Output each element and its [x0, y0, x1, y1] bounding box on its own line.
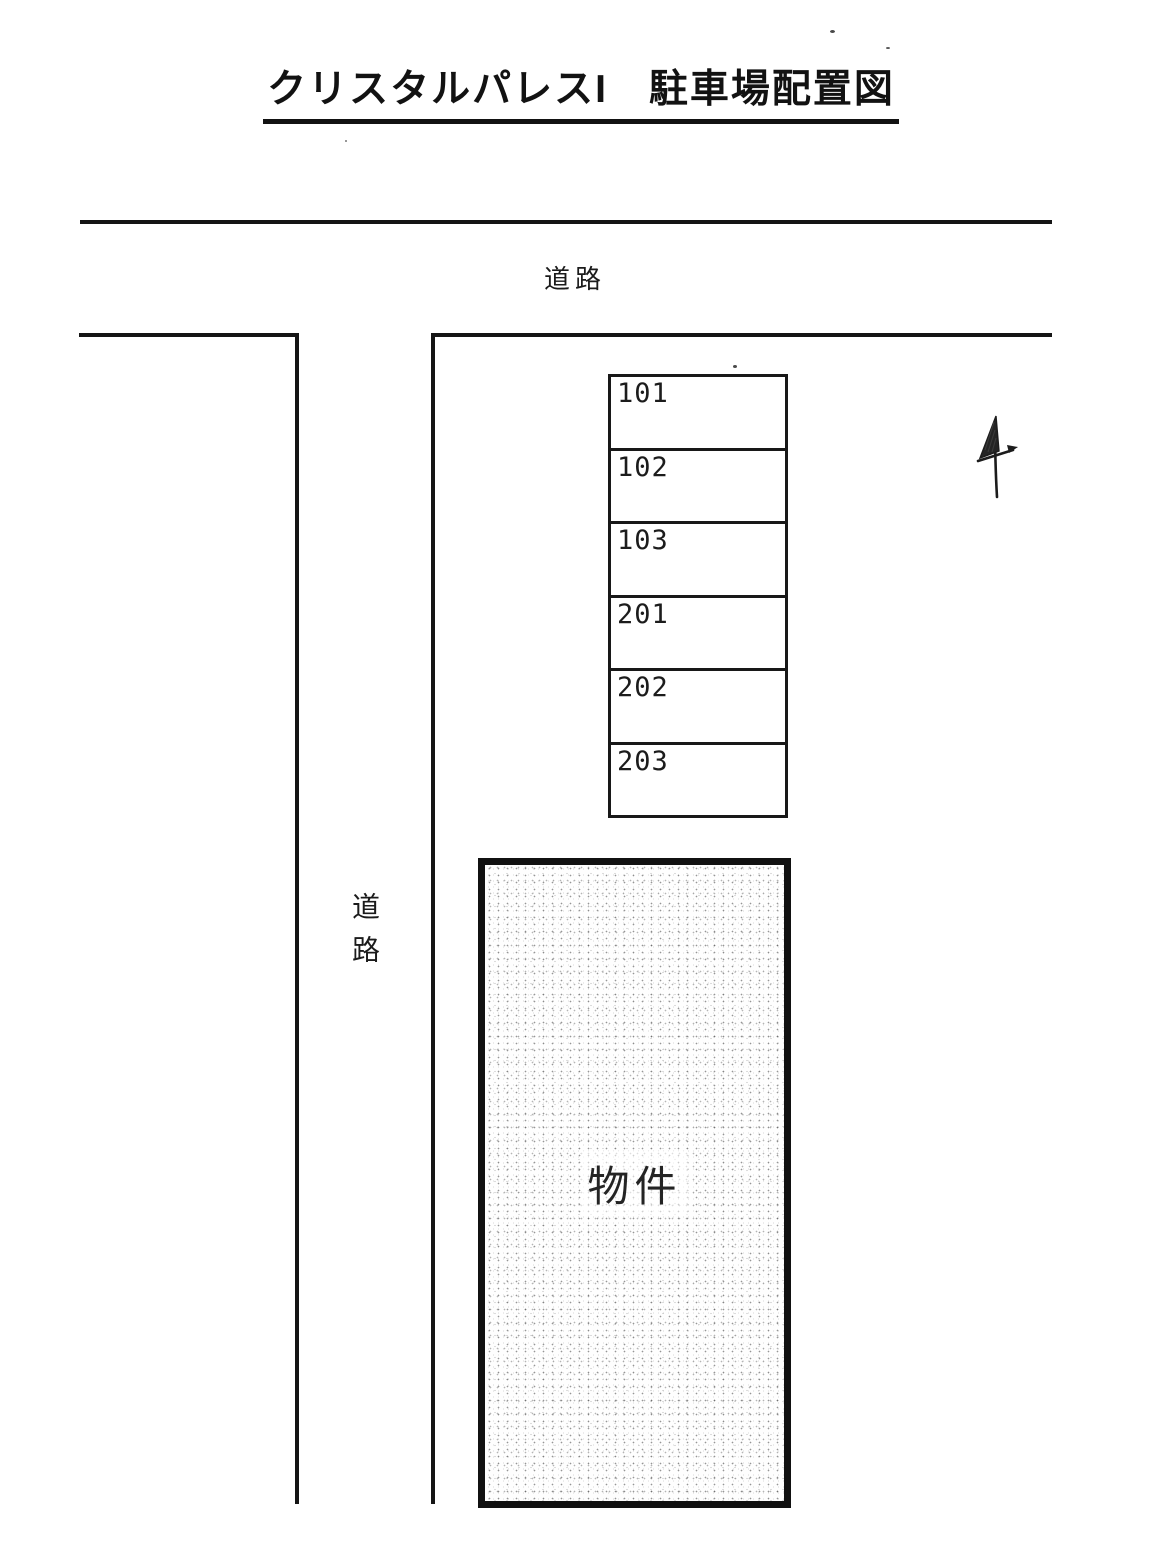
- stall-number: 101: [611, 377, 669, 409]
- parking-stall-201: 201: [611, 595, 785, 669]
- stall-number: 203: [611, 745, 669, 777]
- parking-layout-page: クリスタルパレスI 駐車場配置図 道路 道路 101 102 103 201 2…: [0, 0, 1162, 1546]
- scan-speck: [733, 365, 737, 368]
- parking-stall-103: 103: [611, 521, 785, 595]
- parking-stall-203: 203: [611, 742, 785, 816]
- scan-speck: [886, 47, 890, 49]
- parking-stall-101: 101: [611, 377, 785, 448]
- vertical-road-right-edge: [431, 333, 435, 1504]
- title-wrap: クリスタルパレスI 駐車場配置図: [0, 58, 1162, 124]
- stall-number: 202: [611, 671, 669, 703]
- parking-stall-table: 101 102 103 201 202 203: [608, 374, 788, 818]
- building-block: 物件: [478, 858, 791, 1508]
- parking-stall-202: 202: [611, 668, 785, 742]
- parcel-boundary-right-top: [431, 333, 1052, 337]
- road-label-left: 道路: [344, 892, 384, 978]
- road-boundary-top: [80, 220, 1052, 224]
- north-arrow-icon: [965, 400, 1035, 510]
- stall-number: 103: [611, 524, 669, 556]
- scan-speck: [830, 30, 835, 33]
- parcel-boundary-left-top: [79, 333, 298, 337]
- vertical-road-left-edge: [295, 333, 299, 1504]
- stall-number: 102: [611, 451, 669, 483]
- building-label: 物件: [581, 1151, 687, 1216]
- road-label-top: 道路: [544, 259, 606, 296]
- scan-speck: [345, 140, 347, 142]
- page-title: クリスタルパレスI 駐車場配置図: [263, 58, 899, 124]
- stall-number: 201: [611, 598, 669, 630]
- parking-stall-102: 102: [611, 448, 785, 522]
